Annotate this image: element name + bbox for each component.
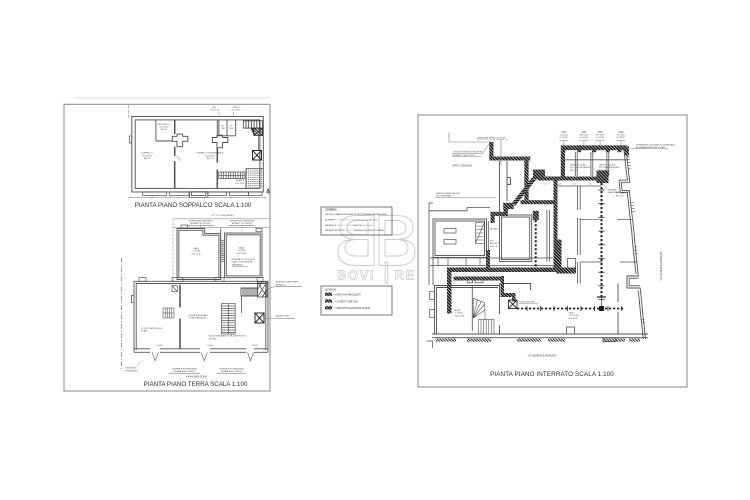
svg-text:H 1,30 MT: H 1,30 MT [560,137,569,139]
svg-text:ELEMENTI DI PROGETTO DA REALIZ: ELEMENTI DI PROGETTO DA REALIZZARE IN LO… [325,218,378,221]
svg-text:ASCENSORE: ASCENSORE [276,314,290,317]
svg-text:90x210: 90x210 [252,345,258,347]
svg-text:2 MQ: 2 MQ [221,128,226,130]
svg-text:SIG.: SIG. [490,241,494,243]
svg-text:PRINCIPALE: PRINCIPALE [126,369,139,372]
svg-text:LEGENDA: LEGENDA [325,289,336,292]
svg-text:CANT.NO LOCALE: CANT.NO LOCALE [599,164,616,167]
svg-text:T 61,10 MQ: T 61,10 MQ [569,315,580,317]
svg-text:IN LOCAZIONE A ENTE: IN LOCAZIONE A ENTE [599,166,620,169]
svg-text:APPART. SX 145 MQ: APPART. SX 145 MQ [191,222,211,225]
svg-text:H=2.10 M: H=2.10 M [210,110,219,112]
svg-text:IMPIANTI ELETTRICI NUOVI DA PR: IMPIANTI ELETTRICI NUOVI DA PREDISPORRE … [325,229,384,232]
svg-text:VERANDA SUL RETRO: VERANDA SUL RETRO [173,370,196,373]
svg-text:2 MQ: 2 MQ [229,128,234,130]
svg-text:VENTILATORE: VENTILATORE [520,301,536,304]
svg-text:MQ 9,00: MQ 9,00 [570,170,577,172]
svg-text:TERRANEO: TERRANEO [232,263,244,266]
svg-text:ALTEZZA SOTTOSOLAIO: ALTEZZA SOTTOSOLAIO [232,258,256,261]
svg-text:90x210: 90x210 [157,345,163,347]
svg-text:LAVORI DI MANUTENZIONE STRAORD: LAVORI DI MANUTENZIONE STRAORDINARIA DA … [325,213,387,216]
svg-text:H 1,30 MT: H 1,30 MT [580,137,589,139]
svg-text:H=2.70 M: H=2.70 M [191,253,200,255]
svg-text:28 MQ: 28 MQ [141,331,148,333]
svg-text:SALA: SALA [193,247,199,250]
svg-text:H 1,30 MT: H 1,30 MT [596,137,605,139]
svg-text:LOTTO CONDOMINIO: LOTTO CONDOMINIO [211,215,234,217]
svg-text:BOVI: BOVI [337,268,375,283]
svg-text:VIA GIUSEPPE GARIBALDI: VIA GIUSEPPE GARIBALDI [660,251,663,280]
svg-text:H=2.40 M: H=2.40 M [142,155,151,157]
svg-text:MQ 28: MQ 28 [144,158,151,160]
svg-text:SUPERFICIE PRESUNTA: SUPERFICIE PRESUNTA [230,220,255,223]
svg-text:SCALA B: SCALA B [236,179,245,182]
svg-text:SCALA PRINCIPALE: SCALA PRINCIPALE [189,314,209,317]
svg-text:ALLA MANUTENZIONE LOCALI: ALLA MANUTENZIONE LOCALI [636,146,665,149]
svg-text:H 1,30 MT: H 1,30 MT [617,137,626,139]
svg-text:H=2.20 M: H=2.20 M [236,183,245,185]
svg-text:AULA: AULA [455,309,461,312]
svg-text:PIANO DI PROPRIETA: PIANO DI PROPRIETA [232,261,253,264]
svg-text:VIA GENERALE ARIMONDI: VIA GENERALE ARIMONDI [528,354,557,357]
svg-text:APPART. DX 145 MQ: APPART. DX 145 MQ [232,222,252,225]
svg-text:SUPERFICIE PRESUNTA: SUPERFICIE PRESUNTA [188,220,213,223]
svg-text:LINEA SMALTIMENTO ACQUE: LINEA SMALTIMENTO ACQUE [477,137,506,140]
svg-text:P. UFF. DI APPOGGIO: P. UFF. DI APPOGGIO [141,327,162,330]
svg-text:MQ 1,00: MQ 1,00 [616,195,623,197]
svg-text:H=2.40 M: H=2.40 M [455,315,464,317]
svg-text:T 34 MQ: T 34 MQ [455,313,463,315]
svg-text:VIA ANDREA DORIA: VIA ANDREA DORIA [186,376,208,379]
svg-text:IMPIANTO TELEFONICO: IMPIANTO TELEFONICO [453,154,476,157]
svg-text:1,00: 1,00 [573,184,576,186]
svg-text:RE: RE [395,268,416,283]
svg-text:DEL TRIBUNALE: DEL TRIBUNALE [436,195,452,198]
svg-text:INGRESSO: INGRESSO [126,368,137,370]
svg-text:ARCHIVIO: ARCHIVIO [490,242,500,245]
svg-text:PIANTA PIANO INTERRATO SCALA 1: PIANTA PIANO INTERRATO SCALA 1:100 [490,371,614,378]
svg-text:SERVIZI IGIENICI AD USO: SERVIZI IGIENICI AD USO [436,192,461,195]
svg-text:(CONDOMINIALE): (CONDOMINIALE) [189,317,207,320]
svg-text:T 20 MQ: T 20 MQ [192,251,200,253]
svg-text:AULA TRIBUNALE DI 3A DI APPOGG: AULA TRIBUNALE DI 3A DI APPOGGIO [209,335,247,338]
svg-text:IMPIANTI E CONDUTTURE IDRICHE: IMPIANTI E CONDUTTURE IDRICHE DA RIFARE [325,224,374,227]
svg-text:CALDAIA: CALDAIA [490,228,499,231]
svg-text:SUPERFICIE PRESUNTA: SUPERFICIE PRESUNTA [172,367,197,370]
svg-text:VERANDA SUL RETRO: VERANDA SUL RETRO [220,370,243,373]
svg-text:SUPERFICIE DISPONIBILE E RISER: SUPERFICIE DISPONIBILE E RISERVATA [636,143,675,146]
svg-text:T 18 MQ: T 18 MQ [237,250,245,252]
svg-text:MQ 30: MQ 30 [207,158,214,160]
svg-text:H=2.40 M: H=2.40 M [205,155,214,157]
svg-text:H=2.40 M: H=2.40 M [569,318,578,320]
svg-text:= MURI GIA' REALIZZATI: = MURI GIA' REALIZZATI [335,294,362,297]
svg-text:ALA PEDONALE PIANO: ALA PEDONALE PIANO [276,281,299,284]
svg-text:= CONDUTTURE GAS: = CONDUTTURE GAS [335,300,359,303]
svg-text:= IMPIANTI FOGNATURA ACQUE: = IMPIANTI FOGNATURA ACQUE [335,307,371,310]
svg-text:SALA: SALA [239,246,245,249]
svg-text:90x210: 90x210 [207,345,213,347]
svg-text:APPALTO: APPALTO [276,283,286,286]
svg-text:1,00: 1,00 [543,184,546,186]
svg-text:H=2.70 M: H=2.70 M [237,253,246,255]
svg-text:SOPPALCO NON ABITABILE: SOPPALCO NON ABITABILE [196,152,224,155]
svg-text:H=2.4 M: H=2.4 M [490,246,498,248]
svg-text:IN LOCAZIONE A ENTE: IN LOCAZIONE A ENTE [570,166,591,169]
svg-text:SALA: SALA [569,312,575,315]
svg-text:PIANTA PIANO SOPPALCO SCALA 1:: PIANTA PIANO SOPPALCO SCALA 1:100 [135,202,252,209]
svg-text:LEGENDA: LEGENDA [325,209,337,212]
svg-text:H=2.10 M: H=2.10 M [232,110,241,112]
svg-text:SOPPALCO: SOPPALCO [141,152,153,155]
svg-text:PIANTA PIANO TERRA SCALA 1:100: PIANTA PIANO TERRA SCALA 1:100 [144,381,248,388]
svg-text:CANT.NO LOCALE: CANT.NO LOCALE [570,164,587,167]
svg-text:SISTEMA: SISTEMA [608,188,617,191]
svg-text:SMALTIMENTO ACQUE: SMALTIMENTO ACQUE [608,191,630,194]
svg-text:1,00: 1,00 [588,184,591,186]
svg-text:UFFICI COMUNALI: UFFICI COMUNALI [452,165,473,168]
svg-text:SUPERFICIE PRESUNTA: SUPERFICIE PRESUNTA [219,367,244,370]
svg-text:187 MQ: 187 MQ [209,338,217,340]
svg-text:1,00: 1,00 [558,184,561,186]
svg-text:MQ 3.5: MQ 3.5 [161,129,168,131]
